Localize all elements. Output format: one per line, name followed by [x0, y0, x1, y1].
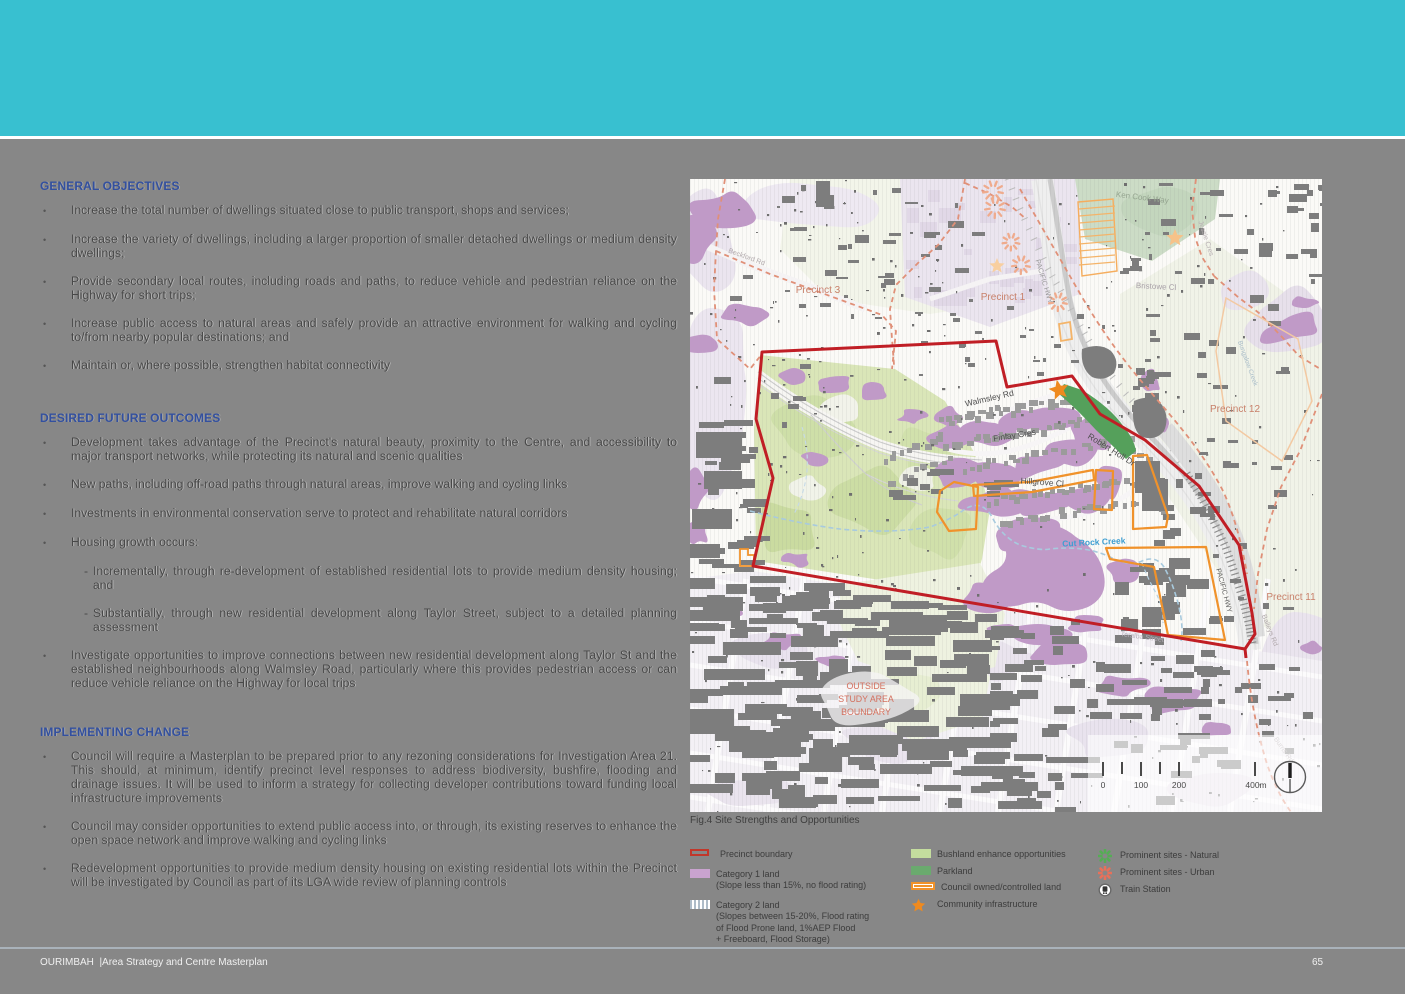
svg-text:400m: 400m: [1245, 780, 1266, 790]
svg-text:Precinct 11: Precinct 11: [1266, 592, 1316, 603]
svg-text:Precinct 1: Precinct 1: [981, 292, 1026, 303]
svg-text:Precinct 12: Precinct 12: [1210, 404, 1260, 415]
svg-text:STUDY AREA: STUDY AREA: [838, 694, 894, 704]
svg-text:200: 200: [1172, 780, 1186, 790]
svg-text:BOUNDARY: BOUNDARY: [841, 707, 891, 717]
svg-text:OUTSIDE: OUTSIDE: [846, 681, 885, 691]
svg-text:100: 100: [1134, 780, 1148, 790]
svg-text:Precinct 3: Precinct 3: [796, 285, 841, 296]
svg-text:0: 0: [1101, 780, 1106, 790]
